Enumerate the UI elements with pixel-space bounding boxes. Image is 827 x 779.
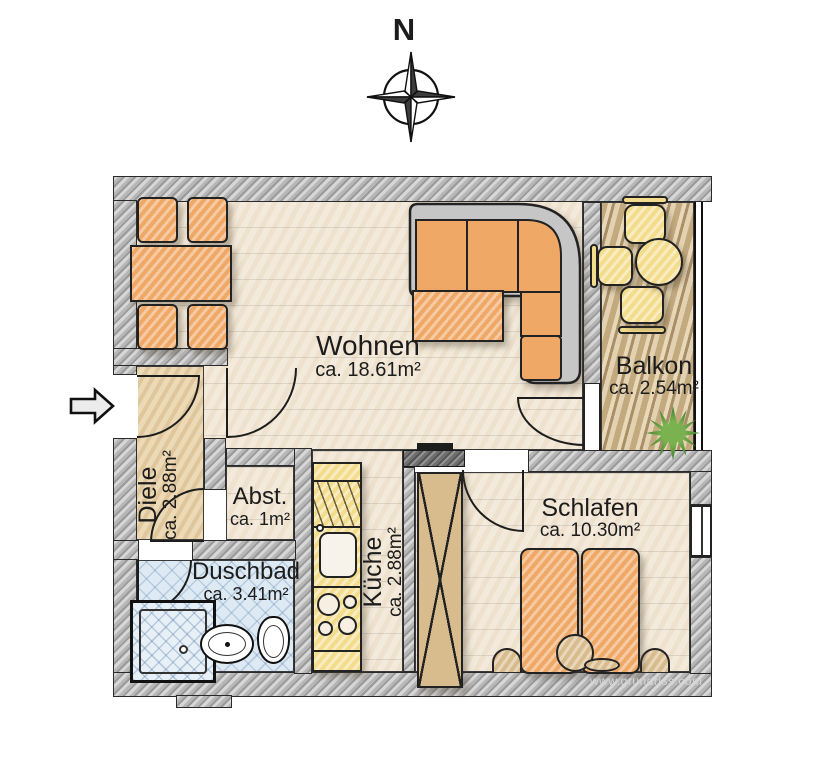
stove-burner bbox=[338, 616, 357, 635]
tv-board bbox=[403, 450, 465, 467]
dining-table bbox=[130, 245, 232, 302]
bedroom-foot-mat bbox=[584, 658, 620, 672]
room-name: Balkon bbox=[616, 353, 692, 379]
shower-drain-icon bbox=[179, 645, 188, 654]
balcony-table bbox=[635, 238, 683, 286]
room-area: ca. 2.88m² bbox=[161, 450, 181, 540]
room-area: ca. 3.41m² bbox=[203, 585, 288, 604]
label-diele: Diele ca. 2.88m² bbox=[134, 430, 182, 560]
label-kueche: Küche ca. 2.88m² bbox=[359, 502, 407, 642]
dining-chair bbox=[187, 197, 228, 243]
balcony-railing bbox=[694, 202, 703, 455]
label-abstellraum: Abst. ca. 1m² bbox=[212, 480, 308, 534]
window-schlafen bbox=[690, 505, 712, 557]
room-area: ca. 2.54m² bbox=[609, 379, 699, 399]
stove-burner bbox=[317, 593, 340, 616]
balcony-chair bbox=[620, 286, 664, 324]
kitchen-faucet-icon bbox=[316, 524, 324, 532]
balcony-chair bbox=[597, 246, 633, 286]
kitchen-drainer bbox=[314, 482, 360, 528]
room-area: ca. 1m² bbox=[230, 510, 290, 529]
sink-drain-icon bbox=[225, 642, 230, 647]
dining-chair bbox=[187, 304, 228, 350]
stove-burner bbox=[343, 595, 357, 609]
toilet-bowl bbox=[263, 625, 284, 658]
room-name: Schlafen bbox=[541, 495, 638, 521]
wall-bottom-step bbox=[176, 695, 232, 708]
nightstand bbox=[492, 648, 522, 672]
compass-north-label: N bbox=[382, 12, 426, 48]
room-area: ca. 18.61m² bbox=[315, 360, 421, 381]
balcony-chair-back bbox=[618, 326, 666, 334]
kitchen-sink bbox=[319, 532, 357, 578]
bathroom-sink bbox=[200, 624, 254, 664]
room-name: Duschbad bbox=[192, 560, 300, 585]
label-duschbad: Duschbad ca. 3.41m² bbox=[180, 556, 312, 608]
toilet bbox=[257, 616, 290, 664]
compass-rose-icon bbox=[365, 46, 457, 148]
kitchen-stove bbox=[314, 586, 360, 652]
balcony-chair-back bbox=[622, 196, 668, 204]
label-wohnen: Wohnen ca. 18.61m² bbox=[268, 326, 468, 386]
kitchen-counter bbox=[312, 462, 362, 672]
wall-schlafen-top bbox=[528, 450, 712, 472]
shower-tray bbox=[139, 609, 207, 674]
floor-plan-canvas: N bbox=[0, 0, 827, 779]
watermark: www.grundriss.com bbox=[590, 674, 720, 690]
room-name: Abst. bbox=[233, 485, 288, 510]
tv-icon bbox=[417, 443, 453, 451]
stove-burner bbox=[318, 621, 333, 636]
window-glass-line bbox=[701, 507, 703, 555]
dining-chair bbox=[137, 304, 178, 350]
wall-diele-top bbox=[113, 348, 228, 366]
kitchen-cabinet bbox=[314, 464, 360, 482]
label-balkon: Balkon ca. 2.54m² bbox=[598, 348, 710, 404]
wall-right-lower bbox=[690, 557, 712, 674]
wardrobe-cross-line bbox=[419, 474, 461, 686]
entrance-arrow-icon bbox=[68, 386, 116, 426]
room-name: Wohnen bbox=[316, 331, 420, 360]
room-area: ca. 10.30m² bbox=[540, 521, 640, 541]
room-name: Küche bbox=[360, 537, 386, 608]
wardrobe bbox=[417, 472, 463, 688]
room-name: Diele bbox=[135, 467, 161, 524]
label-schlafen: Schlafen ca. 10.30m² bbox=[495, 490, 685, 546]
dining-chair bbox=[137, 197, 178, 243]
nightstand bbox=[640, 648, 670, 672]
room-area: ca. 2.88m² bbox=[386, 527, 406, 617]
